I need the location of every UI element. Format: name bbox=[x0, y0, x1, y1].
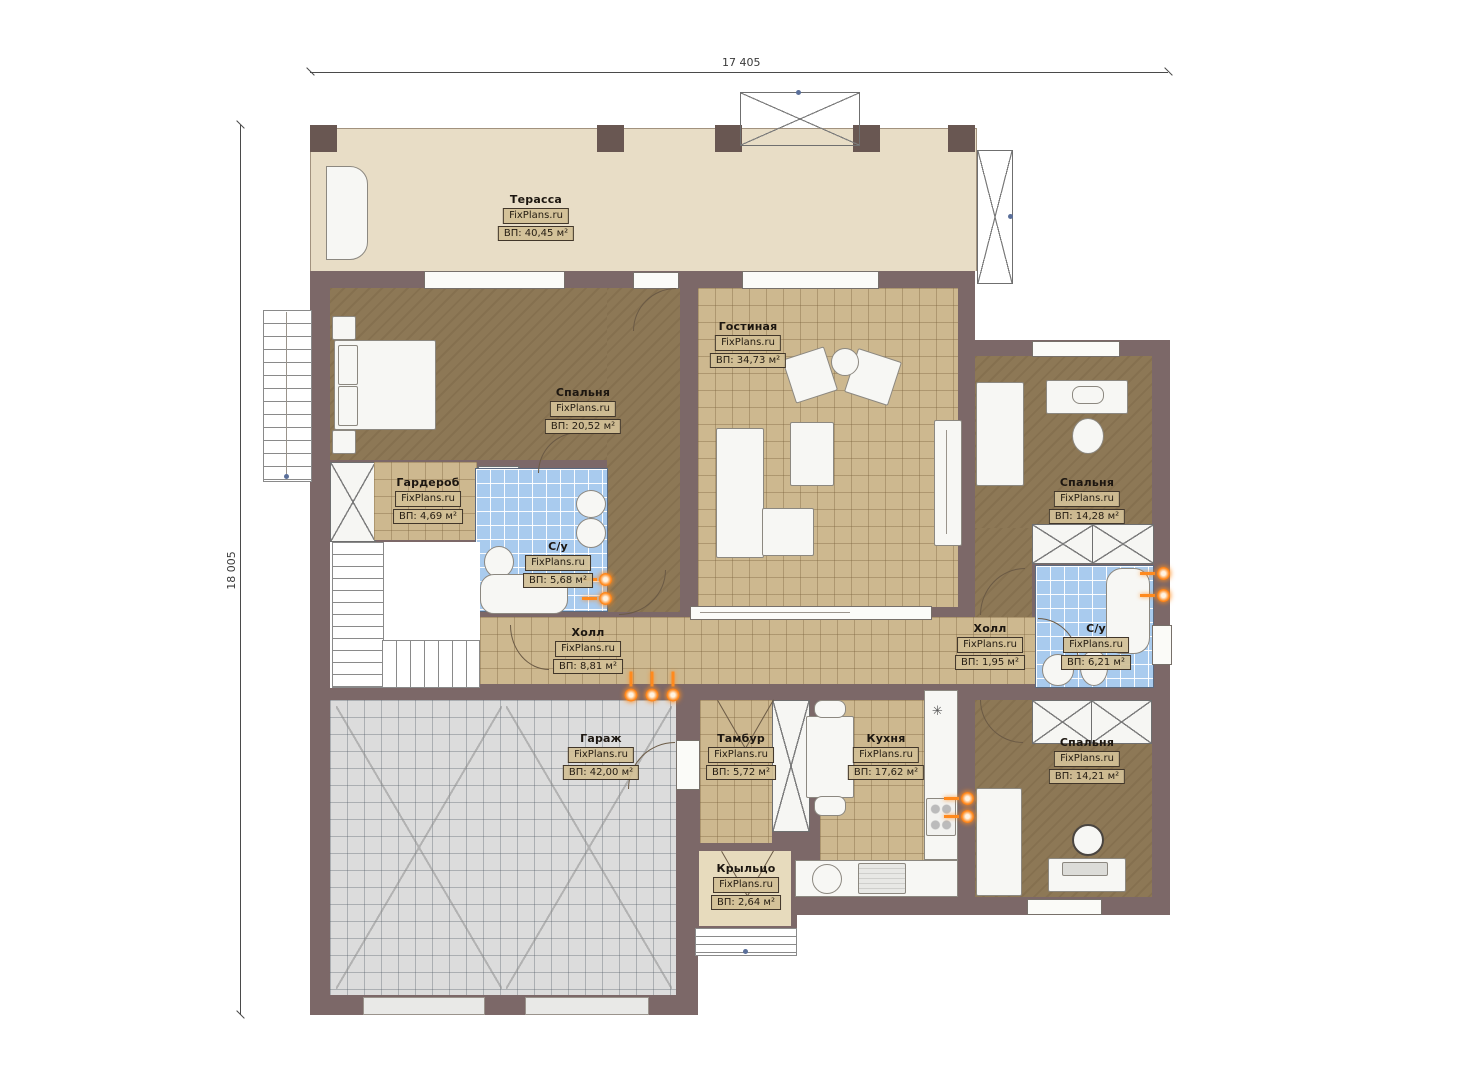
dimension-line-left bbox=[240, 125, 241, 1015]
terrace-bench bbox=[326, 166, 368, 260]
garage-gate bbox=[525, 997, 649, 1015]
nightstand bbox=[332, 430, 356, 454]
terrace-side-marker bbox=[1008, 214, 1013, 219]
radiator bbox=[1140, 589, 1170, 602]
porch-marker bbox=[743, 949, 748, 954]
room-label-bedroom-topright: Спальня FixPlans.ru ВП: 14,28 м² bbox=[1049, 476, 1125, 524]
terrace-pillar bbox=[597, 125, 624, 152]
room-name: Холл bbox=[572, 626, 605, 639]
room-area: ВП: 40,45 м² bbox=[498, 226, 574, 242]
room-name: Терасса bbox=[510, 193, 562, 206]
vent-symbol: ✳ bbox=[932, 704, 943, 719]
sofa bbox=[716, 428, 764, 558]
sliding-door-line bbox=[700, 612, 850, 613]
pillow bbox=[338, 345, 358, 385]
living-room-cabinet bbox=[934, 420, 962, 546]
bed bbox=[976, 788, 1022, 896]
room-name: Кухня bbox=[867, 732, 906, 745]
chair bbox=[814, 796, 846, 816]
room-label-hall-right: Холл FixPlans.ru ВП: 1,95 м² bbox=[955, 622, 1025, 670]
stair-run-horizontal bbox=[382, 640, 480, 688]
laptop bbox=[1072, 386, 1104, 404]
watermark: FixPlans.ru bbox=[525, 555, 591, 571]
dimension-width-label: 17 405 bbox=[722, 56, 761, 69]
oven bbox=[858, 863, 906, 894]
sofa-chaise bbox=[762, 508, 814, 556]
window bbox=[1152, 625, 1172, 665]
room-label-kitchen: Кухня FixPlans.ru ВП: 17,62 м² bbox=[848, 732, 924, 780]
bedroom-left-floor-leg bbox=[607, 288, 680, 612]
watermark: FixPlans.ru bbox=[708, 747, 774, 763]
tv bbox=[1062, 862, 1108, 876]
watermark: FixPlans.ru bbox=[1054, 751, 1120, 767]
window bbox=[1032, 341, 1120, 357]
nightstand bbox=[332, 316, 356, 340]
wardrobe-cabinet bbox=[330, 462, 376, 542]
room-label-bedroom-bottomright: Спальня FixPlans.ru ВП: 14,21 м² bbox=[1049, 736, 1125, 784]
room-label-bathroom-left: С/у FixPlans.ru ВП: 5,68 м² bbox=[523, 540, 593, 588]
cabinet-line bbox=[946, 430, 947, 534]
watermark: FixPlans.ru bbox=[568, 747, 634, 763]
radiator bbox=[646, 672, 659, 702]
room-name: Крыльцо bbox=[717, 862, 776, 875]
watermark: FixPlans.ru bbox=[853, 747, 919, 763]
sink bbox=[576, 490, 606, 518]
room-area: ВП: 17,62 м² bbox=[848, 765, 924, 781]
room-area: ВП: 1,95 м² bbox=[955, 655, 1025, 671]
watermark: FixPlans.ru bbox=[1063, 637, 1129, 653]
radiator bbox=[944, 792, 974, 805]
watermark: FixPlans.ru bbox=[713, 877, 779, 893]
bedroom-topright-wardrobe bbox=[1032, 524, 1094, 564]
exterior-stair bbox=[263, 310, 312, 482]
room-area: ВП: 6,21 м² bbox=[1061, 655, 1131, 671]
room-label-hall-main: Холл FixPlans.ru ВП: 8,81 м² bbox=[553, 626, 623, 674]
chair bbox=[814, 700, 846, 718]
watermark: FixPlans.ru bbox=[957, 637, 1023, 653]
canopy-marker bbox=[796, 90, 801, 95]
window bbox=[742, 271, 879, 289]
room-area: ВП: 14,28 м² bbox=[1049, 509, 1125, 525]
desk-chair bbox=[1072, 418, 1104, 454]
window bbox=[1027, 899, 1102, 915]
terrace-door-opening bbox=[633, 272, 679, 289]
room-label-garage: Гараж FixPlans.ru ВП: 42,00 м² bbox=[563, 732, 639, 780]
room-area: ВП: 2,64 м² bbox=[711, 895, 781, 911]
canopy-symbol bbox=[740, 92, 860, 146]
floor-pot bbox=[1072, 824, 1104, 856]
garage-side-door-opening bbox=[676, 740, 700, 790]
window bbox=[424, 271, 565, 289]
room-label-porch: Крыльцо FixPlans.ru ВП: 2,64 м² bbox=[711, 862, 781, 910]
kitchen-sink bbox=[812, 864, 842, 894]
garage-bay-mark bbox=[336, 706, 502, 989]
room-label-vestibule: Тамбур FixPlans.ru ВП: 5,72 м² bbox=[706, 732, 776, 780]
radiator bbox=[667, 672, 680, 702]
room-name: Спальня bbox=[1060, 476, 1114, 489]
watermark: FixPlans.ru bbox=[1054, 491, 1120, 507]
radiator bbox=[625, 672, 638, 702]
floor-plan: ✳ Терасса FixPlans.ru ВП: 40,45 м² Спаль… bbox=[0, 0, 1474, 1080]
radiator bbox=[944, 810, 974, 823]
living-room-sliding-door bbox=[690, 606, 932, 620]
room-area: ВП: 8,81 м² bbox=[553, 659, 623, 675]
stair-run-vertical bbox=[332, 542, 384, 688]
room-area: ВП: 42,00 м² bbox=[563, 765, 639, 781]
radiator bbox=[582, 592, 612, 605]
dimension-height-label: 18 005 bbox=[225, 551, 238, 590]
room-area: ВП: 14,21 м² bbox=[1049, 769, 1125, 785]
room-name: Спальня bbox=[1060, 736, 1114, 749]
watermark: FixPlans.ru bbox=[555, 641, 621, 657]
room-area: ВП: 20,52 м² bbox=[545, 419, 621, 435]
room-label-wardrobe: Гардероб FixPlans.ru ВП: 4,69 м² bbox=[393, 476, 463, 524]
dining-table bbox=[806, 716, 854, 798]
side-table bbox=[831, 348, 859, 376]
room-name: Гостиная bbox=[719, 320, 778, 333]
terrace-pillar bbox=[310, 125, 337, 152]
garage-gate bbox=[363, 997, 485, 1015]
room-area: ВП: 5,72 м² bbox=[706, 765, 776, 781]
exterior-stair-rail bbox=[286, 312, 287, 478]
terrace-pillar bbox=[948, 125, 975, 152]
room-label-terrace: Терасса FixPlans.ru ВП: 40,45 м² bbox=[498, 193, 574, 241]
room-name: Холл bbox=[974, 622, 1007, 635]
bedroom-topright-wardrobe bbox=[1092, 524, 1154, 564]
radiator bbox=[1140, 567, 1170, 580]
bed bbox=[976, 382, 1024, 486]
watermark: FixPlans.ru bbox=[550, 401, 616, 417]
room-name: Спальня bbox=[556, 386, 610, 399]
coffee-table bbox=[790, 422, 834, 486]
room-area: ВП: 4,69 м² bbox=[393, 509, 463, 525]
watermark: FixPlans.ru bbox=[395, 491, 461, 507]
pillow bbox=[338, 386, 358, 426]
watermark: FixPlans.ru bbox=[715, 335, 781, 351]
room-name: Гардероб bbox=[396, 476, 459, 489]
room-label-bathroom-right: С/у FixPlans.ru ВП: 6,21 м² bbox=[1061, 622, 1131, 670]
exterior-stair-marker bbox=[284, 474, 289, 479]
room-name: Гараж bbox=[580, 732, 622, 745]
room-label-living: Гостиная FixPlans.ru ВП: 34,73 м² bbox=[710, 320, 786, 368]
room-name: С/у bbox=[548, 540, 568, 553]
room-name: С/у bbox=[1086, 622, 1106, 635]
watermark: FixPlans.ru bbox=[503, 208, 569, 224]
room-name: Тамбур bbox=[717, 732, 765, 745]
room-area: ВП: 5,68 м² bbox=[523, 573, 593, 589]
vestibule-wardrobe bbox=[772, 700, 810, 832]
room-label-bedroom-left: Спальня FixPlans.ru ВП: 20,52 м² bbox=[545, 386, 621, 434]
room-area: ВП: 34,73 м² bbox=[710, 353, 786, 369]
terrace-pillar bbox=[715, 125, 742, 152]
dimension-line-top bbox=[310, 72, 1168, 73]
